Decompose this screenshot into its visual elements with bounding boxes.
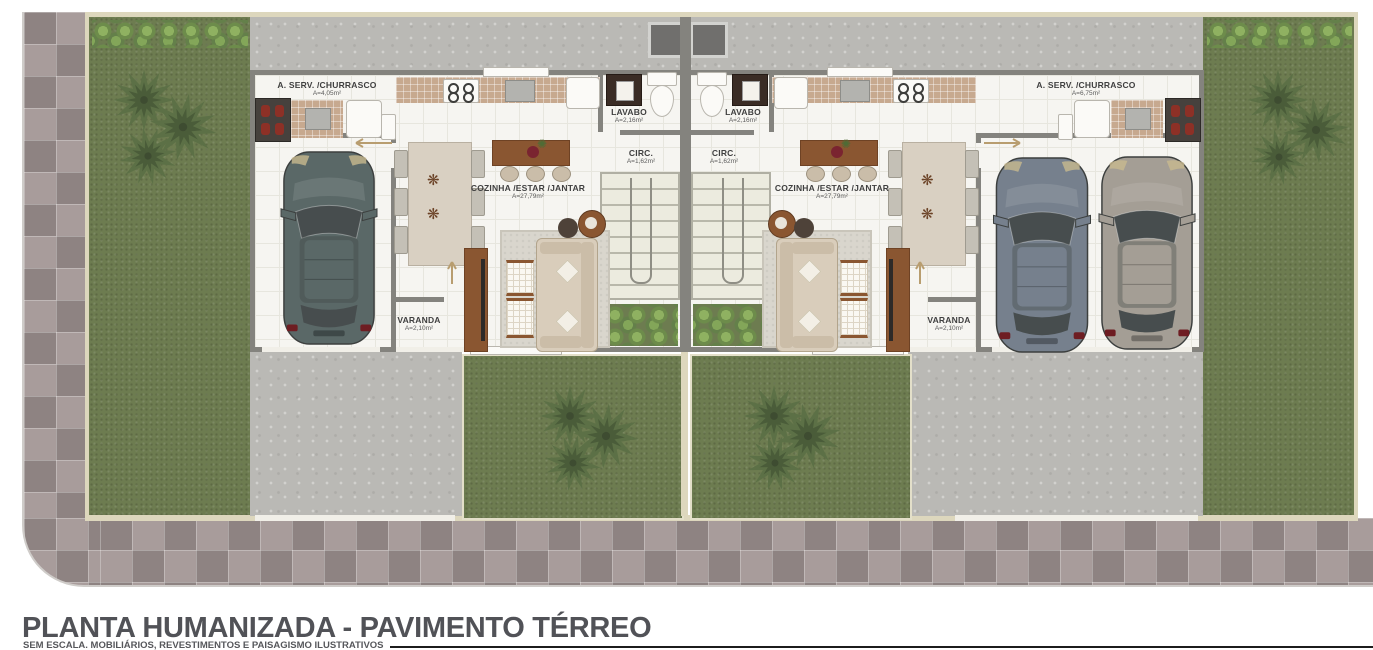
internal-garden-left [604,304,678,346]
varanda-arrow-right [914,256,926,284]
wall-varanda-right [928,297,976,302]
vanity-right [732,74,768,106]
room-area: A=6,75m² [1034,90,1138,98]
washtub-right [1074,100,1110,138]
ottoman [840,298,868,338]
gate-right [955,515,1198,521]
toilet-tank-left [647,72,677,86]
water-tank-right [690,22,728,58]
kitchen-sink-right [840,80,870,102]
ottoman [840,260,868,296]
vanity-left [606,74,642,106]
stool [500,166,519,182]
chair [965,150,979,178]
internal-garden-right [693,304,767,346]
room-area: A=2,16m² [598,117,660,125]
room-area: A=2,10m² [383,325,455,333]
side-table-small-right [794,218,814,238]
stool [806,166,825,182]
chair [394,150,408,178]
laundry-sink-right [1125,108,1151,130]
laundry-sink-left [305,108,331,130]
tv-panel-right [886,248,910,352]
room-name: VARANDA [383,315,455,325]
table-plant: ❋ [921,171,934,189]
chair [471,150,485,178]
property-wall-right [1354,12,1358,520]
sidewalk-vertical [22,12,87,520]
gate-left [255,515,455,521]
room-name: CIRC. [612,148,670,158]
room-label-varanda-left: VARANDA A=2,10m² [383,315,455,333]
chair [965,226,979,254]
stool [858,166,877,182]
ottoman [506,298,534,338]
car-garage-left [270,150,388,346]
room-label-varanda-right: VARANDA A=2,10m² [913,315,985,333]
ottoman [506,260,534,296]
room-label-living-left: COZINHA /ESTAR /JANTAR A=27,79m² [462,183,594,201]
room-area: A=27,79m² [766,193,898,201]
washtub-left [346,100,382,138]
barbecue-grill-left [255,98,291,142]
hedgerow-left [92,20,248,48]
wall-lavabo-bottom-left [620,130,686,135]
tv-panel-left [464,248,488,352]
dining-table-right: ❋ ❋ [902,142,966,266]
cooktop-right [893,79,929,103]
driveway-left [250,350,462,516]
car-garage-right-blue [992,156,1092,354]
kitchen-window-left [483,67,549,77]
barbecue-grill-right [1165,98,1201,142]
room-area: A=2,16m² [712,117,774,125]
room-label-service-right: A. SERV. /CHURRASCO A=6,75m² [1034,80,1138,98]
room-name: A. SERV. /CHURRASCO [1034,80,1138,90]
kitchen-island-right: ✺ [800,140,878,166]
cooktop-left [443,79,479,103]
stair-handrail-right [722,178,744,284]
fridge-left [566,77,600,109]
lawn-divider-wall [681,350,688,516]
chair [965,188,979,216]
shrub [113,121,183,191]
room-name: LAVABO [712,107,774,117]
room-label-service-left: A. SERV. /CHURRASCO A=4,05m² [275,80,379,98]
stool [552,166,571,182]
table-plant: ❋ [427,205,440,223]
room-name: COZINHA /ESTAR /JANTAR [462,183,594,193]
wall-lavabo-bottom-right [688,130,754,135]
room-name: A. SERV. /CHURRASCO [275,80,379,90]
room-name: LAVABO [598,107,660,117]
stair-handrail-left [630,178,652,284]
dining-table-left: ❋ ❋ [408,142,472,266]
room-label-living-right: COZINHA /ESTAR /JANTAR A=27,79m² [766,183,898,201]
room-area: A=2,10m² [913,325,985,333]
page-subtitle: SEM ESCALA. MOBILIÁRIOS, REVESTIMENTOS E… [23,640,384,650]
room-name: COZINHA /ESTAR /JANTAR [766,183,898,193]
chair [888,150,902,178]
sofa-left [536,238,598,352]
stool [832,166,851,182]
kitchen-sink-left [505,80,535,102]
hedgerow-right [1207,20,1352,48]
room-label-lavabo-left: LAVABO A=2,16m² [598,107,660,125]
party-wall [680,17,691,352]
entry-arrow-right [984,137,1028,149]
room-area: A=4,05m² [275,90,379,98]
side-table-right [768,210,796,238]
room-area: A=27,79m² [462,193,594,201]
kitchen-island-left: ✺ [492,140,570,166]
floor-plan: ❋ ❋ ✺ [0,0,1373,650]
varanda-opening-right [906,347,976,352]
fridge-right [774,77,808,109]
washer-right [1058,114,1073,140]
room-area: A=1,62m² [695,158,753,166]
room-area: A=1,62m² [612,158,670,166]
varanda-opening-left [396,347,466,352]
wall-varanda-left [396,297,444,302]
chair [394,226,408,254]
room-name: CIRC. [695,148,753,158]
chair [394,188,408,216]
room-label-lavabo-right: LAVABO A=2,16m² [712,107,774,125]
sofa-right [776,238,838,352]
room-label-circ-right: CIRC. A=1,62m² [695,148,753,166]
room-name: VARANDA [913,315,985,325]
kitchen-window-right [827,67,893,77]
table-plant: ❋ [427,171,440,189]
entry-arrow-left [348,137,392,149]
toilet-tank-right [697,72,727,86]
side-table-left [578,210,606,238]
wall-stub-right [976,133,981,143]
varanda-arrow-left [446,256,458,284]
car-garage-right-silver [1098,146,1196,360]
room-label-circ-left: CIRC. A=1,62m² [612,148,670,166]
driveway-right [908,350,1203,516]
footer-rule [390,646,1373,648]
garage-door-left [262,347,380,352]
stool [526,166,545,182]
sidewalk-horizontal [100,518,1373,587]
table-plant: ❋ [921,205,934,223]
side-table-small-left [558,218,578,238]
